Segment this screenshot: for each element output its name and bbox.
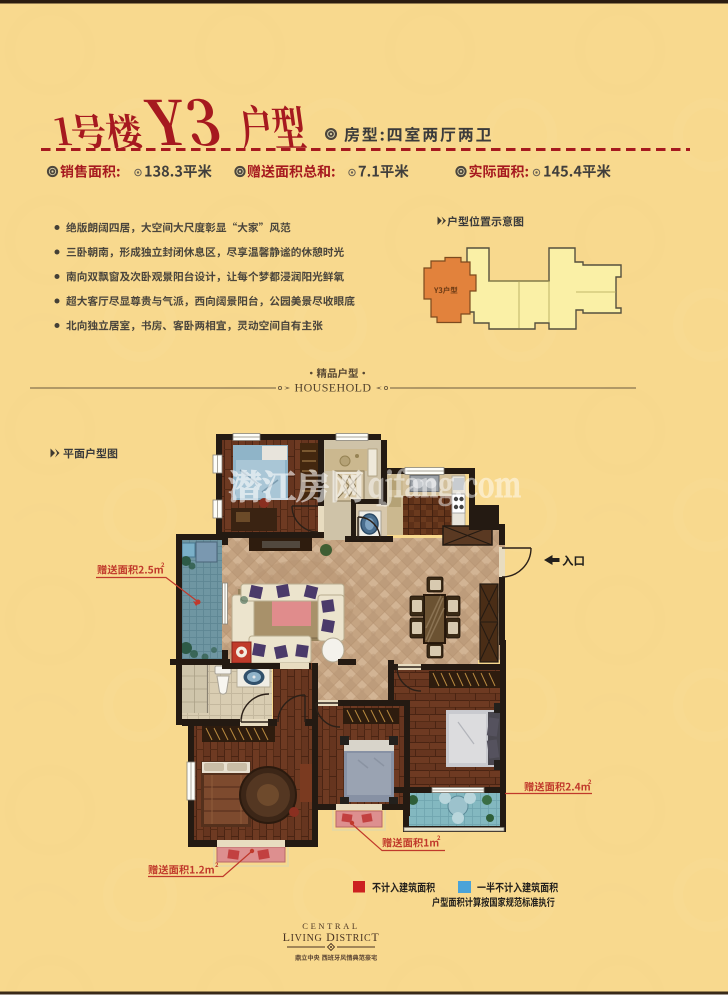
- svg-text:HOUSEHOLD: HOUSEHOLD: [295, 381, 372, 395]
- svg-text:LIVING DISTRICT: LIVING DISTRICT: [283, 930, 380, 944]
